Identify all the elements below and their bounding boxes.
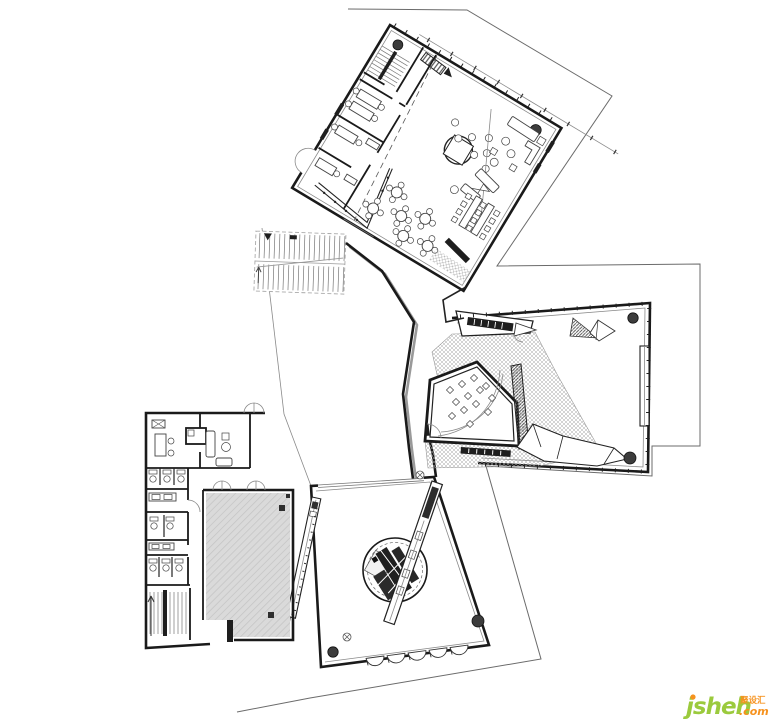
west-double-door [290, 143, 315, 172]
wall-stub [227, 620, 233, 642]
logo-dot-icon [690, 694, 695, 699]
east-wing [425, 287, 650, 472]
column [628, 313, 638, 323]
column [472, 615, 484, 627]
south-wing [284, 471, 489, 667]
hall-column [286, 494, 290, 498]
floor-drain [343, 633, 351, 641]
logo-tld-text: .com [739, 705, 769, 718]
top-double-door [244, 403, 264, 413]
floor-plan-canvas: jsheh 聚设汇 .com [0, 0, 780, 727]
floor-plan-page: jsheh 聚设汇 .com [0, 0, 780, 727]
west-wing [146, 403, 293, 648]
exterior-stair [254, 231, 346, 294]
multipurpose-hall [203, 481, 293, 642]
pantry [186, 428, 206, 444]
hall-column [279, 505, 285, 511]
courtyard-wall [346, 243, 414, 479]
watermark-logo: jsheh 聚设汇 .com [683, 694, 769, 720]
floor-drain [416, 471, 424, 479]
column [328, 647, 338, 657]
hall-column [268, 612, 274, 618]
courtyard [254, 228, 436, 486]
column [624, 452, 636, 464]
theater-room [425, 362, 529, 457]
